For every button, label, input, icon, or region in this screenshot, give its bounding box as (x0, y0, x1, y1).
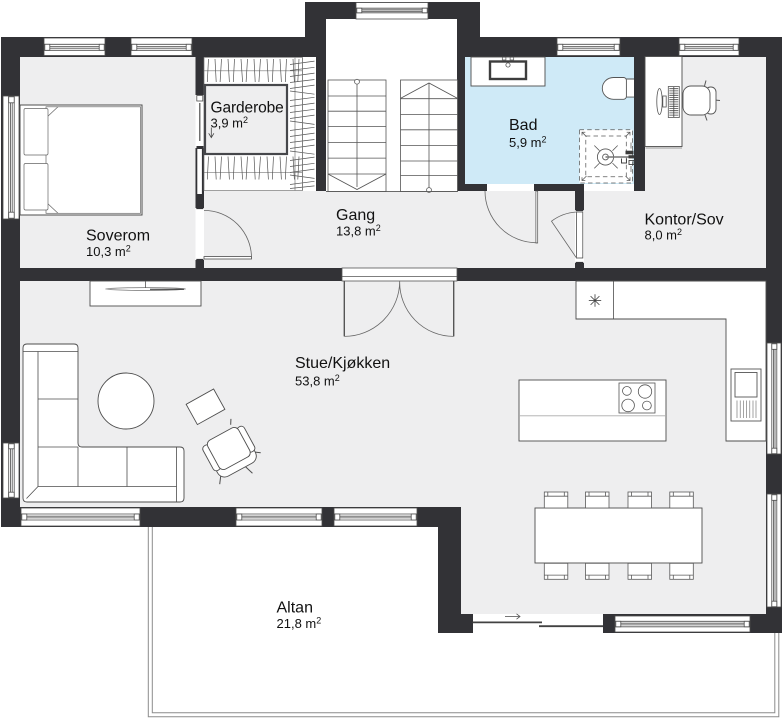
svg-text:13,8 m2: 13,8 m2 (336, 223, 381, 239)
svg-text:53,8 m2: 53,8 m2 (295, 373, 340, 389)
svg-text:Garderobe: Garderobe (211, 100, 284, 117)
svg-text:8,0 m2: 8,0 m2 (645, 227, 683, 243)
svg-text:Kontor/Sov: Kontor/Sov (645, 212, 724, 229)
svg-text:Stue/Kjøkken: Stue/Kjøkken (295, 355, 390, 372)
svg-text:5,9 m2: 5,9 m2 (509, 135, 547, 151)
svg-text:Altan: Altan (277, 600, 313, 617)
svg-text:Bad: Bad (509, 117, 537, 134)
svg-text:3,9 m2: 3,9 m2 (211, 115, 249, 131)
svg-text:Soverom: Soverom (86, 228, 150, 245)
svg-text:Gang: Gang (336, 207, 375, 224)
svg-text:21,8 m2: 21,8 m2 (277, 616, 322, 632)
svg-text:10,3 m2: 10,3 m2 (86, 244, 131, 260)
